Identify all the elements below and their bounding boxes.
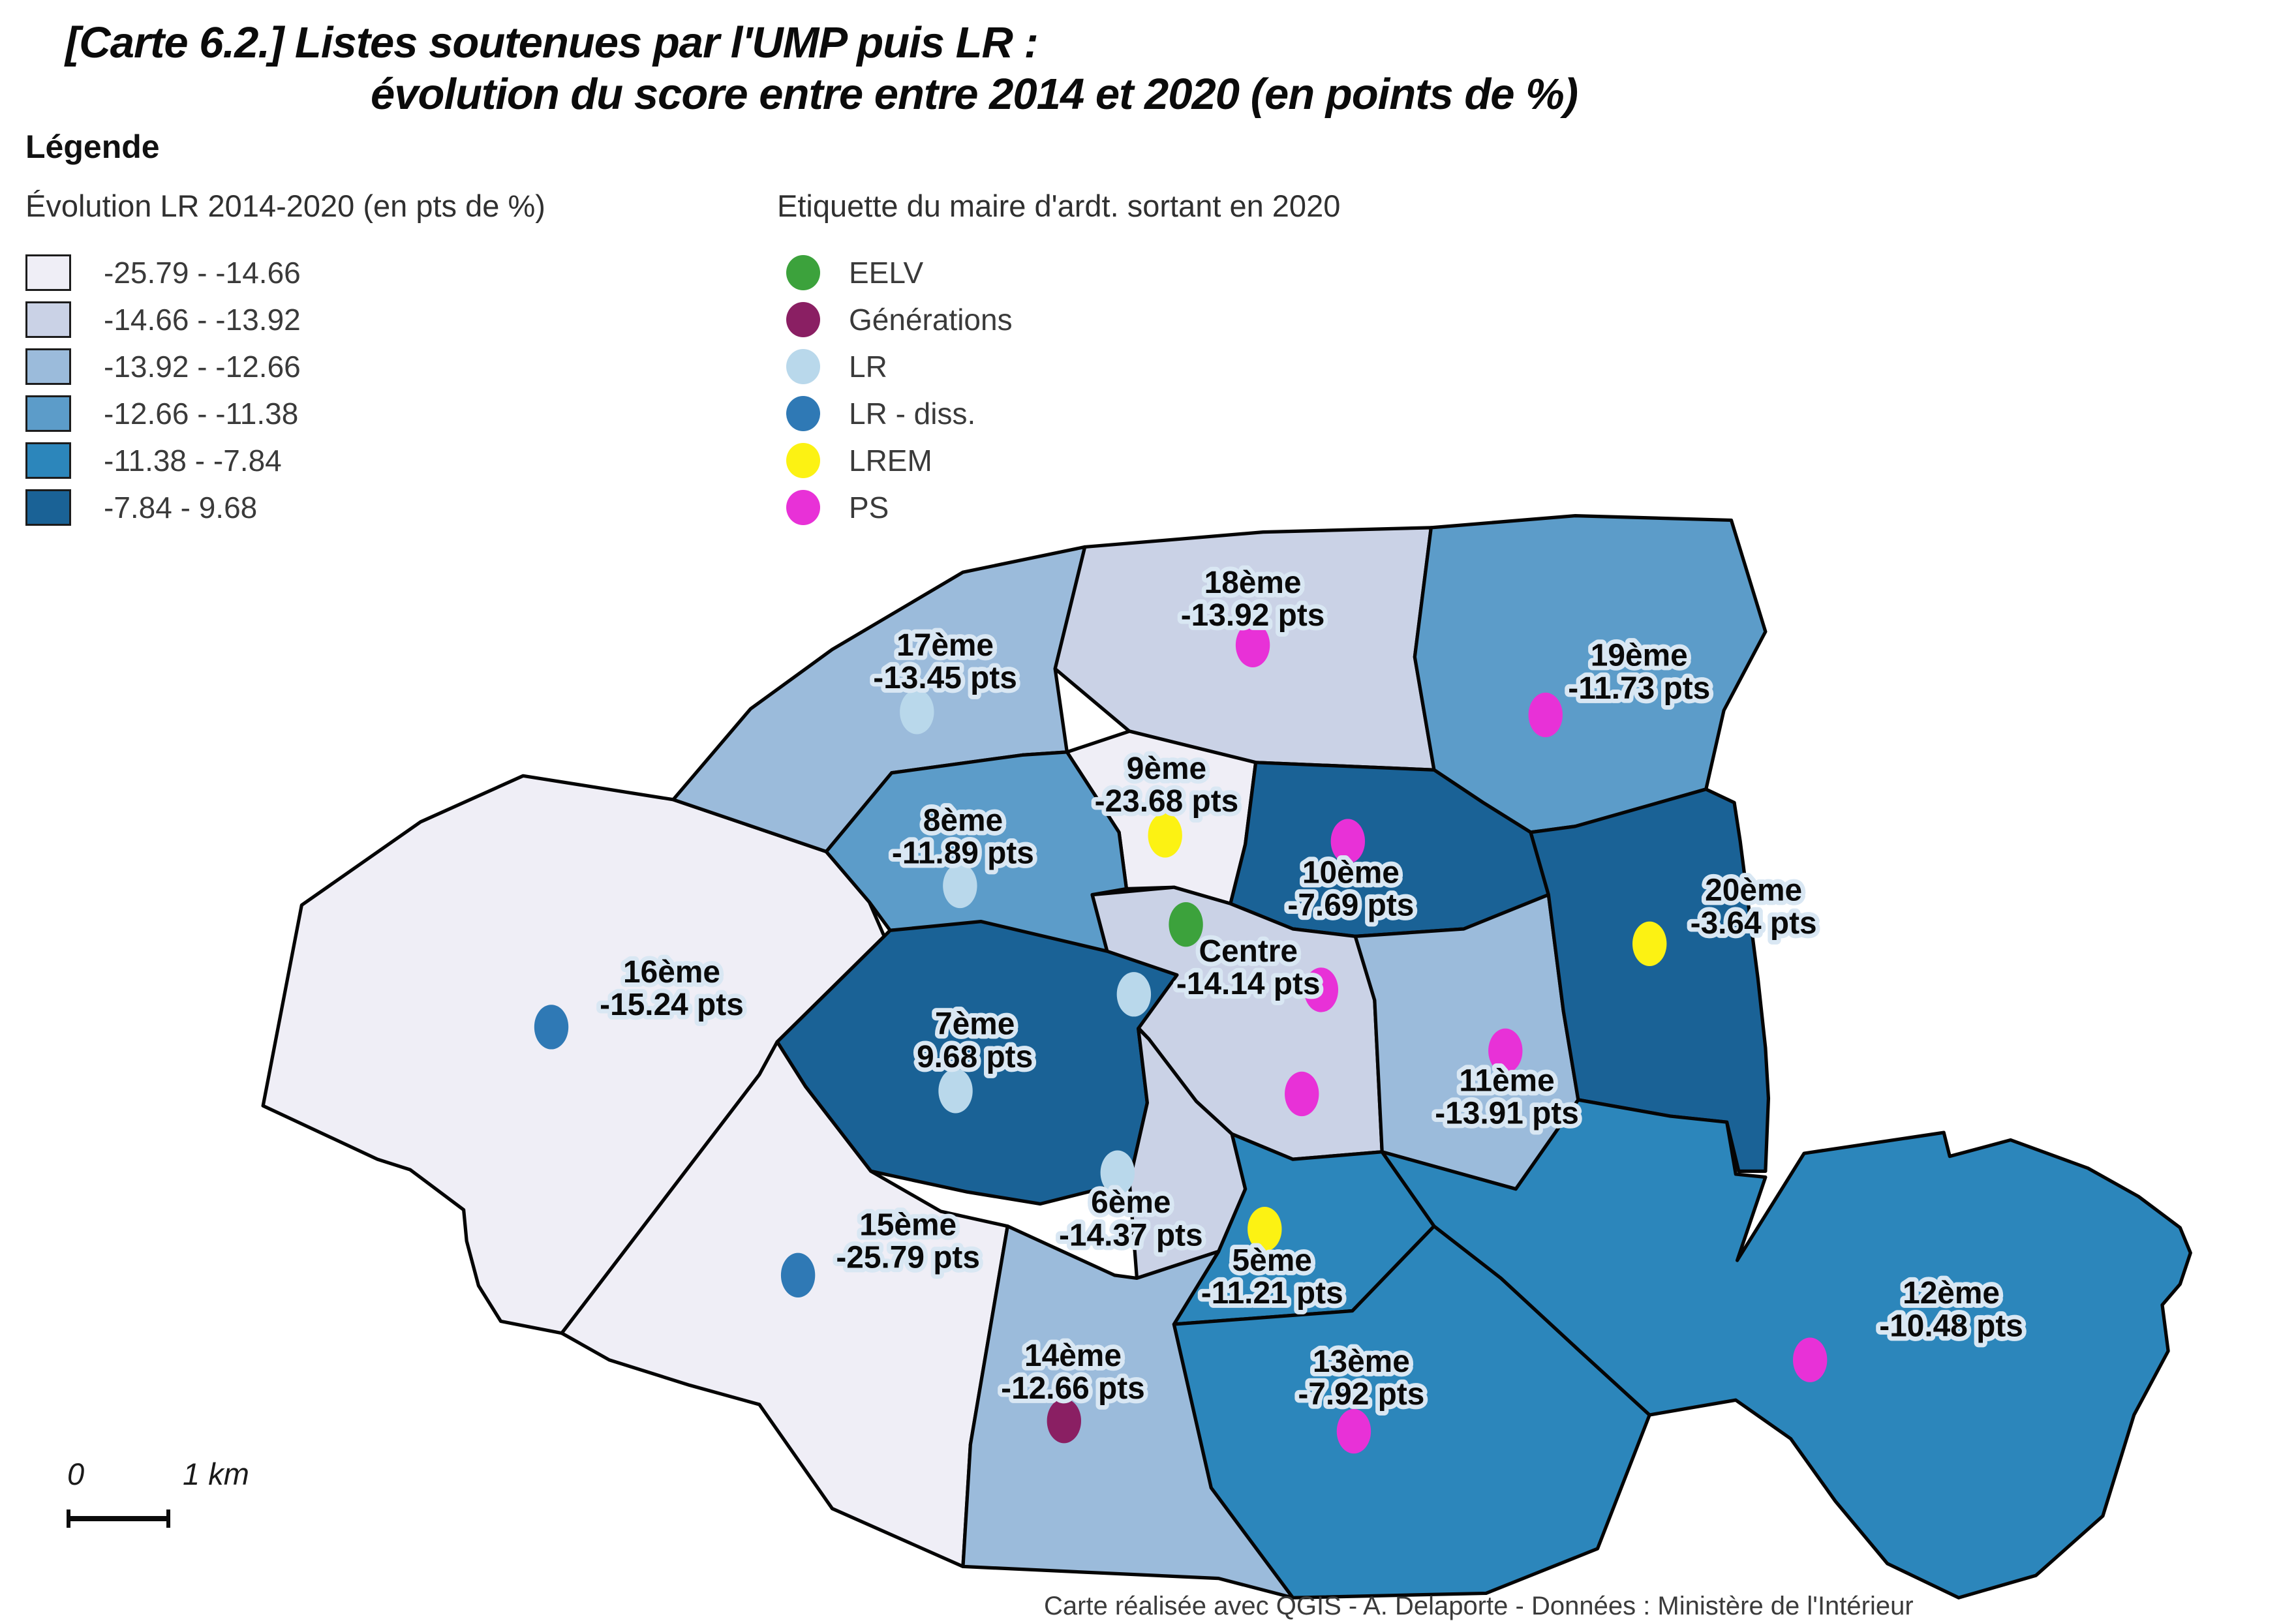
- party-legend-item: Générations: [786, 296, 1013, 343]
- credits-text: Carte réalisée avec QGIS - A. Delaporte …: [1044, 1592, 1914, 1621]
- party-legend-title: Etiquette du maire d'ardt. sortant en 20…: [777, 188, 1340, 224]
- choropleth-legend-item: -12.66 - -11.38: [25, 390, 301, 437]
- class-color-swatch: [25, 442, 71, 479]
- party-legend-item: PS: [786, 484, 1013, 531]
- class-range-label: -25.79 - -14.66: [104, 255, 301, 290]
- mayor-dot-lrem-9: [1148, 813, 1182, 857]
- party-legend-item: LR: [786, 343, 1013, 390]
- mayor-dot-lrd-15: [781, 1253, 815, 1297]
- party-legend-item: LREM: [786, 437, 1013, 484]
- figure-title-line2: évolution du score entre entre 2014 et 2…: [65, 68, 1578, 120]
- mayor-dot-eelv-centre: [1169, 902, 1202, 947]
- mayor-dot-lrem-20: [1632, 922, 1666, 966]
- mayor-dot-lr-17: [900, 690, 934, 734]
- class-color-swatch: [25, 395, 71, 432]
- scale-bar-zero: 0: [67, 1456, 84, 1492]
- mayor-dot-lr-7: [938, 1069, 972, 1113]
- class-range-label: -14.66 - -13.92: [104, 302, 301, 337]
- class-color-swatch: [25, 254, 71, 291]
- scale-bar-line: [69, 1516, 170, 1521]
- region-label-10: 10ème-7.69 pts: [1287, 855, 1414, 922]
- party-color-dot: [786, 255, 820, 290]
- party-color-dot: [786, 396, 820, 431]
- paris-arrondissements-map: 16ème-15.24 pts17ème-13.45 pts18ème-13.9…: [0, 0, 2296, 1623]
- party-name-label: LR: [849, 349, 887, 384]
- scale-bar: 0 1 km: [62, 1456, 284, 1495]
- class-range-label: -11.38 - -7.84: [104, 443, 282, 478]
- class-range-label: -12.66 - -11.38: [104, 396, 298, 431]
- class-color-swatch: [25, 348, 71, 385]
- legend-heading: Légende: [25, 128, 160, 166]
- party-name-label: PS: [849, 490, 889, 525]
- mayor-dot-ps-19: [1529, 693, 1563, 737]
- choropleth-legend-item: -13.92 - -12.66: [25, 343, 301, 390]
- map-figure: 16ème-15.24 pts17ème-13.45 pts18ème-13.9…: [0, 0, 2296, 1623]
- choropleth-legend-item: -14.66 - -13.92: [25, 296, 301, 343]
- figure-title: [Carte 6.2.] Listes soutenues par l'UMP …: [65, 17, 1578, 120]
- region-label-20: 20ème-3.64 pts: [1691, 873, 1817, 941]
- party-color-dot: [786, 490, 820, 525]
- party-legend-item: LR - diss.: [786, 390, 1013, 437]
- mayor-dot-lrd-16: [534, 1005, 568, 1049]
- choropleth-legend-item: -11.38 - -7.84: [25, 437, 301, 484]
- class-range-label: -7.84 - 9.68: [104, 490, 257, 525]
- party-name-label: Générations: [849, 302, 1013, 337]
- party-legend-item: EELV: [786, 249, 1013, 296]
- party-color-dot: [786, 349, 820, 384]
- choropleth-legend: -25.79 - -14.66-14.66 - -13.92-13.92 - -…: [25, 249, 301, 531]
- class-range-label: -13.92 - -12.66: [104, 349, 301, 384]
- party-name-label: LR - diss.: [849, 396, 975, 431]
- scale-bar-1km: 1 km: [183, 1456, 249, 1492]
- party-name-label: LREM: [849, 443, 932, 478]
- choropleth-legend-item: -25.79 - -14.66: [25, 249, 301, 296]
- party-color-dot: [786, 443, 820, 478]
- party-name-label: EELV: [849, 255, 923, 290]
- figure-title-line1: [Carte 6.2.] Listes soutenues par l'UMP …: [65, 17, 1578, 68]
- mayor-dot-lr-centre: [1117, 972, 1151, 1016]
- mayor-dot-ps-12: [1793, 1338, 1827, 1382]
- choropleth-legend-title: Évolution LR 2014-2020 (en pts de %): [25, 188, 545, 224]
- mayor-dot-ps-centre: [1285, 1072, 1319, 1116]
- region-label-13: 13ème-7.92 pts: [1298, 1344, 1424, 1412]
- class-color-swatch: [25, 301, 71, 338]
- class-color-swatch: [25, 489, 71, 526]
- choropleth-legend-item: -7.84 - 9.68: [25, 484, 301, 531]
- mayor-dot-ps-13: [1337, 1409, 1371, 1453]
- party-legend: EELVGénérationsLRLR - diss.LREMPS: [786, 249, 1013, 531]
- party-color-dot: [786, 302, 820, 337]
